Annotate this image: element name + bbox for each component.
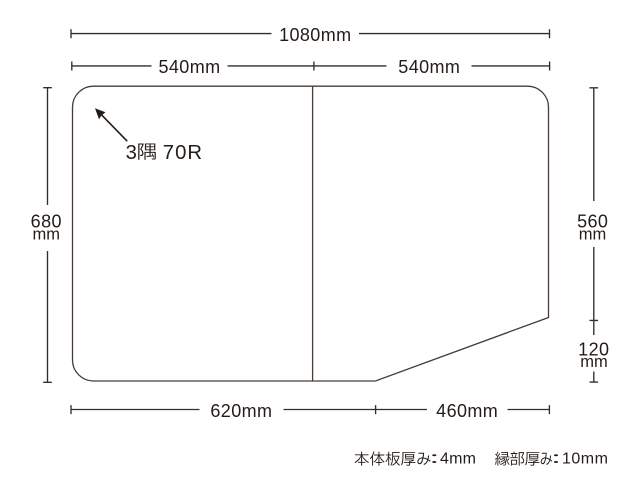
svg-text:540mm: 540mm (398, 57, 460, 77)
svg-text:10mm: 10mm (562, 450, 608, 467)
svg-text:3: 3 (126, 142, 137, 164)
svg-text:mm: mm (33, 225, 61, 243)
svg-text:4mm: 4mm (440, 450, 476, 467)
svg-text:mm: mm (580, 353, 608, 371)
svg-text:70R: 70R (163, 142, 203, 164)
svg-text:540mm: 540mm (158, 57, 220, 77)
svg-text:1080mm: 1080mm (279, 25, 351, 45)
svg-text:620mm: 620mm (210, 401, 272, 421)
svg-text:460mm: 460mm (436, 401, 498, 421)
svg-text:mm: mm (579, 225, 607, 243)
